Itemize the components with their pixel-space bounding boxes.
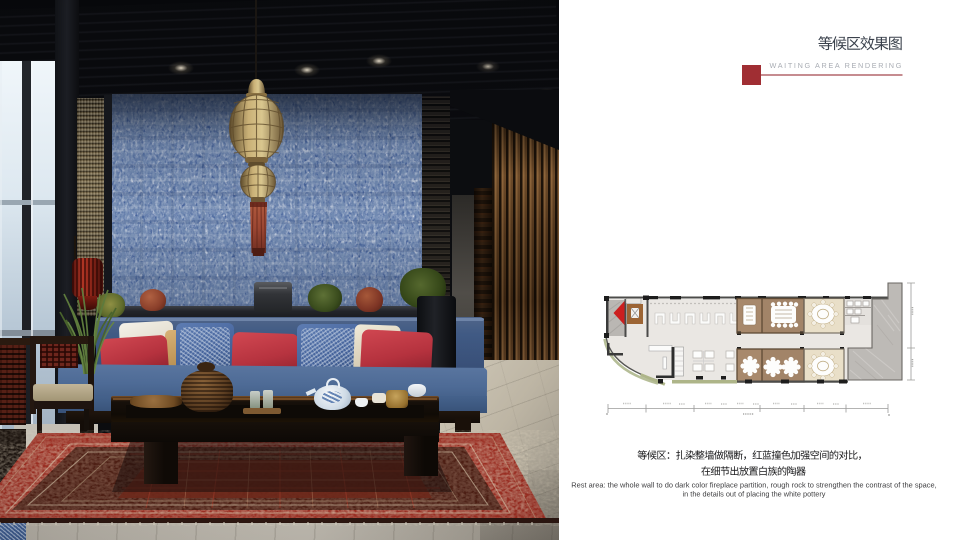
svg-text:WAITING AREA RENDERING: WAITING AREA RENDERING <box>769 61 903 70</box>
svg-text:Rest area: the whole wall to d: Rest area: the whole wall to do dark col… <box>571 481 936 490</box>
svg-text:in the details out of placing: in the details out of placing the white … <box>683 490 826 499</box>
